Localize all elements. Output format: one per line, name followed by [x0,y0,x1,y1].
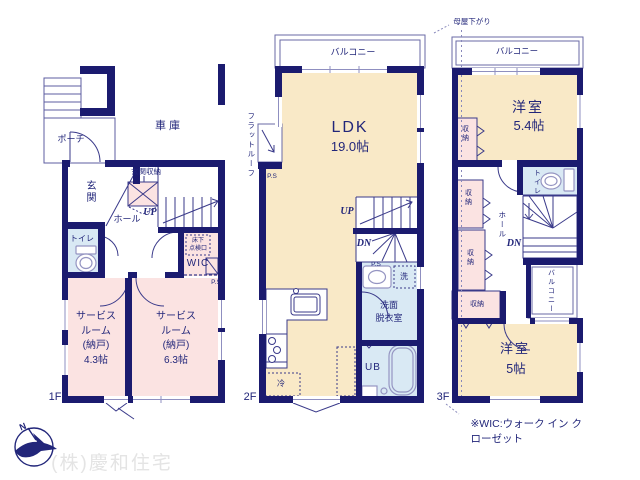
hall-door-arc [152,232,178,258]
up-1f-label: UP [143,206,156,221]
wic-note: ※WIC:ウォーク イン クローゼット [471,416,584,446]
ldk-size-label: 19.0帖 [331,138,369,157]
ps-1f-label: P.S [211,278,221,287]
dropped-roof-leader [434,25,449,33]
dropped-roof-label: 母屋下がり [453,17,491,28]
balcony-2f-label: バルコニー [331,46,376,59]
service-room-a-label: サービス ルーム (納戸) 4.3帖 [76,310,116,368]
hall-1f-label: ホール [113,213,140,226]
room-b-size-label: 5帖 [506,360,525,378]
unit-bath-label: UB [365,361,381,376]
ps-2f-label: P.S [371,260,381,269]
toilet-3f-label: トイレ [534,169,541,196]
dn-2f-label: DN [357,237,371,252]
garage-label: 車庫 [155,119,183,135]
toilet-icon-1f [76,246,96,272]
stove-icon [266,334,287,363]
underfloor-hatch-label: 床下 点検口 [189,237,207,254]
floor3-label: 3F [437,390,450,406]
closet2-label: 収納 [465,189,472,207]
floor2-label: 2F [244,390,257,406]
entrance-storage-label: 玄関収納 [131,167,161,178]
closet4-label: 収納 [470,300,484,310]
wic-1f-label: WIC [187,257,209,272]
closet3-label: 収納 [467,249,474,267]
porch-label: ポーチ [57,133,84,146]
bay-mark-1f [106,403,134,419]
floor-plan-page: N ポーチ 車庫 玄関 玄関収納 ホール UP トイレ 床下 点検口 WIC P… [0,0,640,480]
laundry-label: 洗 [400,271,408,283]
ldk-label: LDK [331,116,368,139]
hall-3f-label: ホール [498,211,506,240]
exterior-steps [44,78,115,163]
flat-roof-box [258,124,282,162]
room-a-size-label: 5.4帖 [513,117,544,136]
flat-roof-label: フラットルーフ [247,112,255,179]
balcony-3f-side-label: バルコニー [548,269,555,314]
floor-plan-drawing: N [0,0,640,480]
balcony-3f-top-label: バルコニー [496,45,538,57]
room-b-label: 洋室 [500,340,530,359]
floor-2f [258,35,425,412]
stairs-1f [158,167,218,227]
toilet-1f-label: トイレ [70,233,94,245]
room-a-label: 洋室 [512,97,544,117]
floor1-label: 1F [49,390,62,406]
dn-3f-label: DN [507,237,521,252]
up-2f-label: UP [340,205,353,220]
bay-mark-2f [293,403,340,412]
service-room-b-label: サービス ルーム (納戸) 6.3帖 [156,310,196,368]
ps-2f-left-label: P.S [267,172,277,181]
washroom-label: 洗面 脱衣室 [375,299,402,325]
closet1-label: 収納 [462,125,469,143]
fridge-label: 冷 [277,378,285,390]
compass-n-label: N [18,421,28,433]
company-watermark: (株)慶和住宅 [51,448,173,475]
entrance-label: 玄関 [84,180,94,204]
